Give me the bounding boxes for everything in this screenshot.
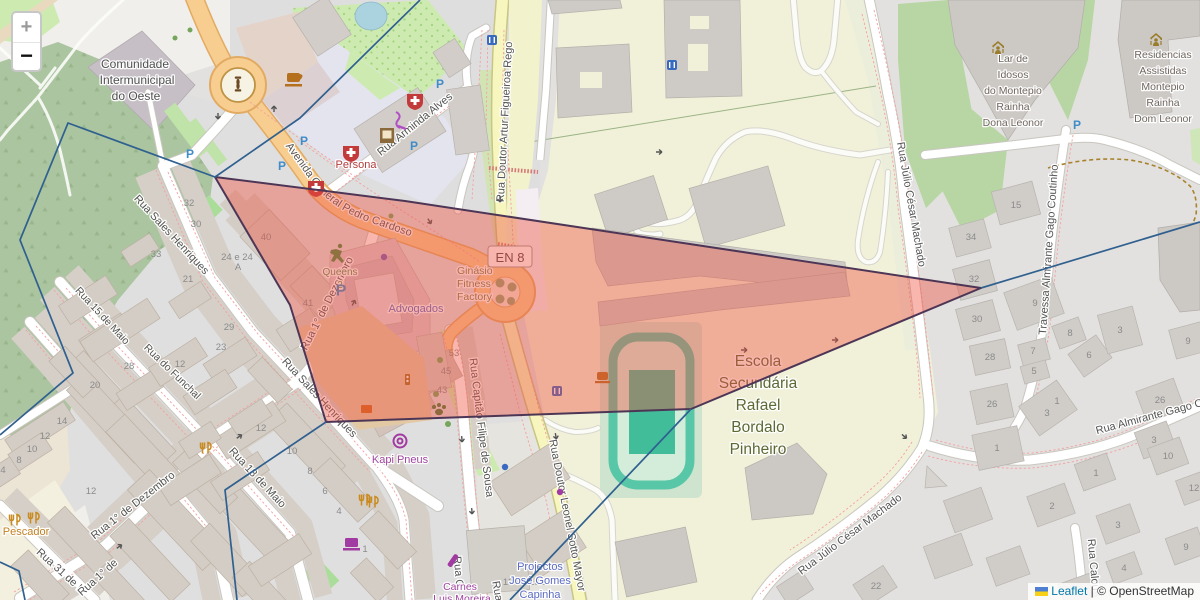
svg-text:12: 12 xyxy=(86,486,97,497)
svg-text:Dom Leonor: Dom Leonor xyxy=(1134,113,1192,125)
svg-text:22: 22 xyxy=(871,581,882,592)
svg-text:26: 26 xyxy=(1155,395,1166,406)
svg-text:José Gomes: José Gomes xyxy=(509,575,571,587)
svg-text:5: 5 xyxy=(1031,366,1036,377)
svg-text:Persona: Persona xyxy=(336,159,378,171)
svg-text:Luis Moreira: Luis Moreira xyxy=(433,593,491,600)
svg-text:10: 10 xyxy=(1163,451,1174,462)
svg-text:4: 4 xyxy=(1121,563,1126,574)
svg-text:1: 1 xyxy=(1093,468,1098,479)
svg-text:Kapi Pneus: Kapi Pneus xyxy=(372,454,429,466)
svg-text:Bordalo: Bordalo xyxy=(731,419,784,436)
svg-text:26: 26 xyxy=(987,399,998,410)
svg-text:1: 1 xyxy=(362,544,367,555)
svg-text:Pescador: Pescador xyxy=(3,526,50,538)
svg-text:Montepio: Montepio xyxy=(1141,81,1184,93)
svg-text:9: 9 xyxy=(1032,298,1037,309)
svg-text:28: 28 xyxy=(124,361,135,372)
svg-text:14: 14 xyxy=(57,416,68,427)
svg-text:3: 3 xyxy=(1044,408,1049,419)
svg-text:8: 8 xyxy=(307,466,312,477)
svg-text:P: P xyxy=(1073,118,1081,132)
svg-text:28: 28 xyxy=(985,352,996,363)
svg-text:P: P xyxy=(410,139,418,153)
svg-text:Comunidade: Comunidade xyxy=(101,57,169,71)
svg-text:7: 7 xyxy=(1030,346,1035,357)
svg-text:9: 9 xyxy=(1185,336,1190,347)
svg-text:6: 6 xyxy=(1086,350,1091,361)
svg-text:33: 33 xyxy=(151,249,162,260)
svg-text:34: 34 xyxy=(966,232,977,243)
svg-text:15: 15 xyxy=(1011,200,1022,211)
svg-text:20: 20 xyxy=(90,380,101,391)
svg-text:P: P xyxy=(436,77,444,91)
svg-text:29: 29 xyxy=(224,322,235,333)
svg-text:Dona Leonor: Dona Leonor xyxy=(983,117,1044,129)
svg-text:32: 32 xyxy=(184,198,195,209)
svg-text:Residencias: Residencias xyxy=(1134,49,1191,61)
svg-text:12: 12 xyxy=(40,431,51,442)
svg-text:Rainha: Rainha xyxy=(1146,97,1179,109)
svg-text:30: 30 xyxy=(972,314,983,325)
svg-text:4: 4 xyxy=(336,506,341,517)
svg-text:4: 4 xyxy=(0,465,5,476)
svg-text:9: 9 xyxy=(1183,542,1188,553)
svg-text:Assistidas: Assistidas xyxy=(1139,65,1186,77)
svg-text:Rafael: Rafael xyxy=(736,397,781,414)
svg-text:Rainha: Rainha xyxy=(996,101,1029,113)
svg-text:A: A xyxy=(235,262,242,273)
svg-text:3: 3 xyxy=(1117,325,1122,336)
svg-text:Capinha: Capinha xyxy=(520,589,562,600)
svg-text:21: 21 xyxy=(183,274,194,285)
svg-text:12: 12 xyxy=(256,423,267,434)
svg-text:8: 8 xyxy=(1067,328,1072,339)
svg-text:23: 23 xyxy=(216,342,227,353)
svg-text:2: 2 xyxy=(1049,501,1054,512)
svg-text:32: 32 xyxy=(969,274,980,285)
svg-text:3: 3 xyxy=(1151,435,1156,446)
svg-text:P: P xyxy=(300,134,308,148)
svg-text:Intermunicipal: Intermunicipal xyxy=(100,73,175,87)
svg-text:do Montepio: do Montepio xyxy=(984,85,1042,97)
svg-text:1: 1 xyxy=(1054,396,1059,407)
svg-text:12: 12 xyxy=(1189,483,1200,494)
svg-text:8: 8 xyxy=(16,455,21,466)
svg-text:Lar de: Lar de xyxy=(998,53,1028,65)
svg-text:Carnes: Carnes xyxy=(443,581,477,593)
svg-text:1: 1 xyxy=(994,443,999,454)
svg-text:Pinheiro: Pinheiro xyxy=(730,441,787,458)
svg-text:30: 30 xyxy=(191,219,202,230)
svg-text:6: 6 xyxy=(322,486,327,497)
svg-text:P: P xyxy=(186,147,194,161)
svg-text:do Oeste: do Oeste xyxy=(112,89,161,103)
svg-text:P: P xyxy=(278,159,286,173)
svg-text:Idosos: Idosos xyxy=(998,69,1029,81)
svg-text:3: 3 xyxy=(1115,520,1120,531)
svg-text:10: 10 xyxy=(27,444,38,455)
